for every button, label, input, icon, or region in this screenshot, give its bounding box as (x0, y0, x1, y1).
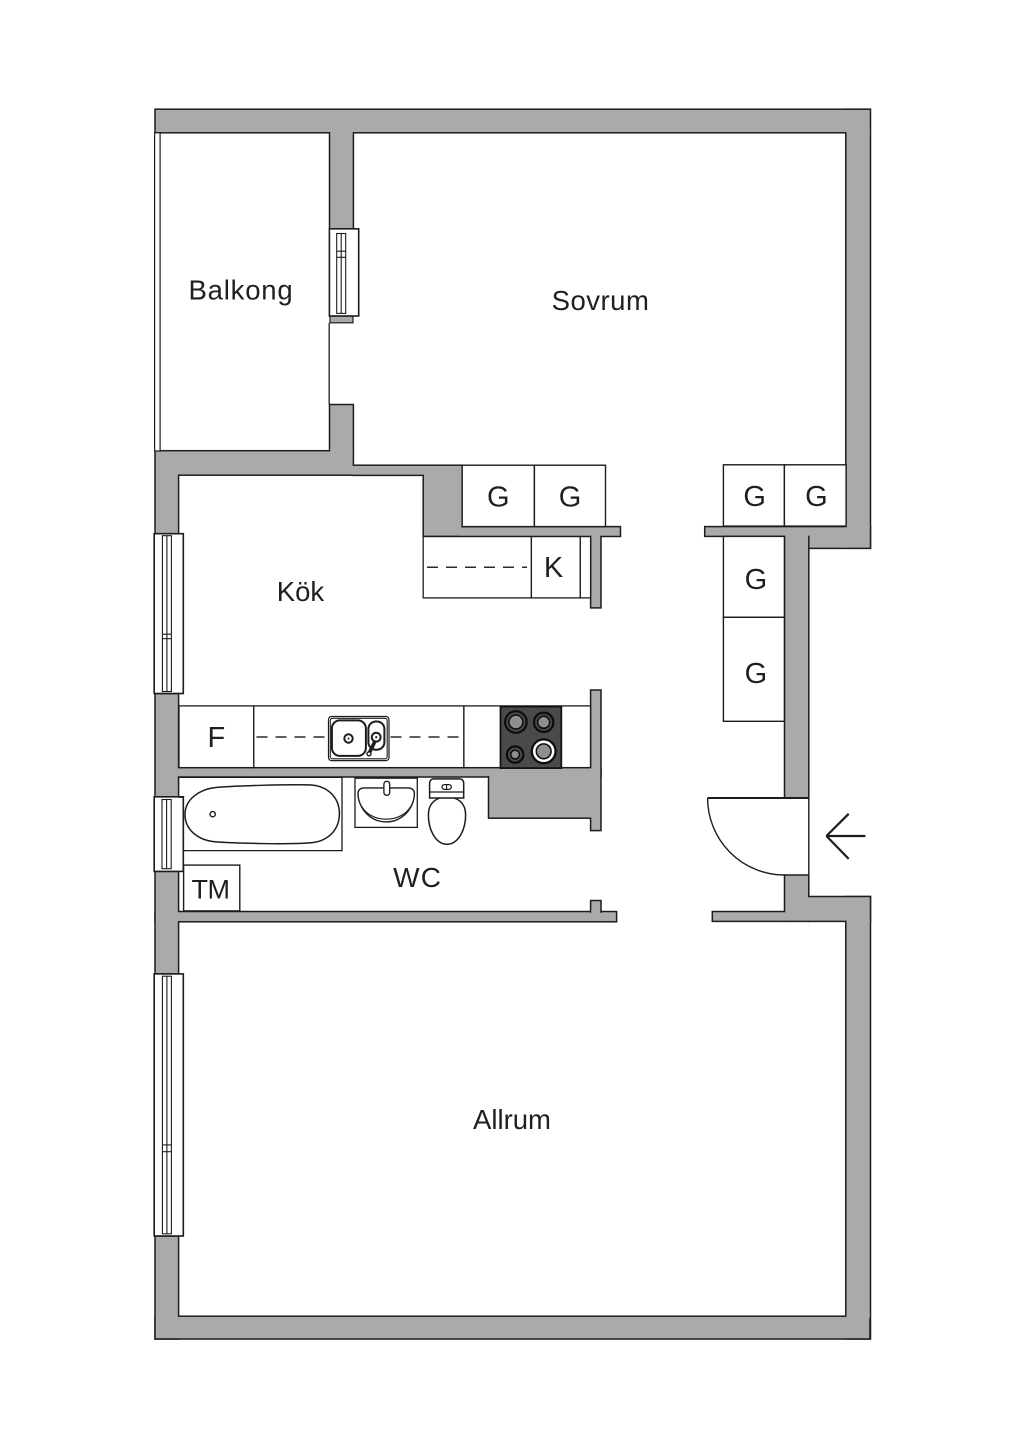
svg-text:Balkong: Balkong (189, 275, 294, 306)
svg-text:K: K (544, 552, 564, 584)
svg-text:F: F (208, 722, 226, 754)
svg-text:G: G (745, 658, 768, 690)
svg-text:G: G (743, 481, 766, 513)
svg-text:G: G (805, 481, 828, 513)
svg-text:Kök: Kök (277, 576, 325, 607)
svg-text:G: G (559, 481, 582, 513)
svg-text:G: G (487, 481, 510, 513)
svg-text:Allrum: Allrum (473, 1104, 551, 1135)
svg-text:TM: TM (192, 874, 230, 904)
svg-text:Sovrum: Sovrum (552, 285, 650, 316)
svg-text:G: G (745, 564, 768, 596)
svg-text:WC: WC (393, 862, 442, 893)
